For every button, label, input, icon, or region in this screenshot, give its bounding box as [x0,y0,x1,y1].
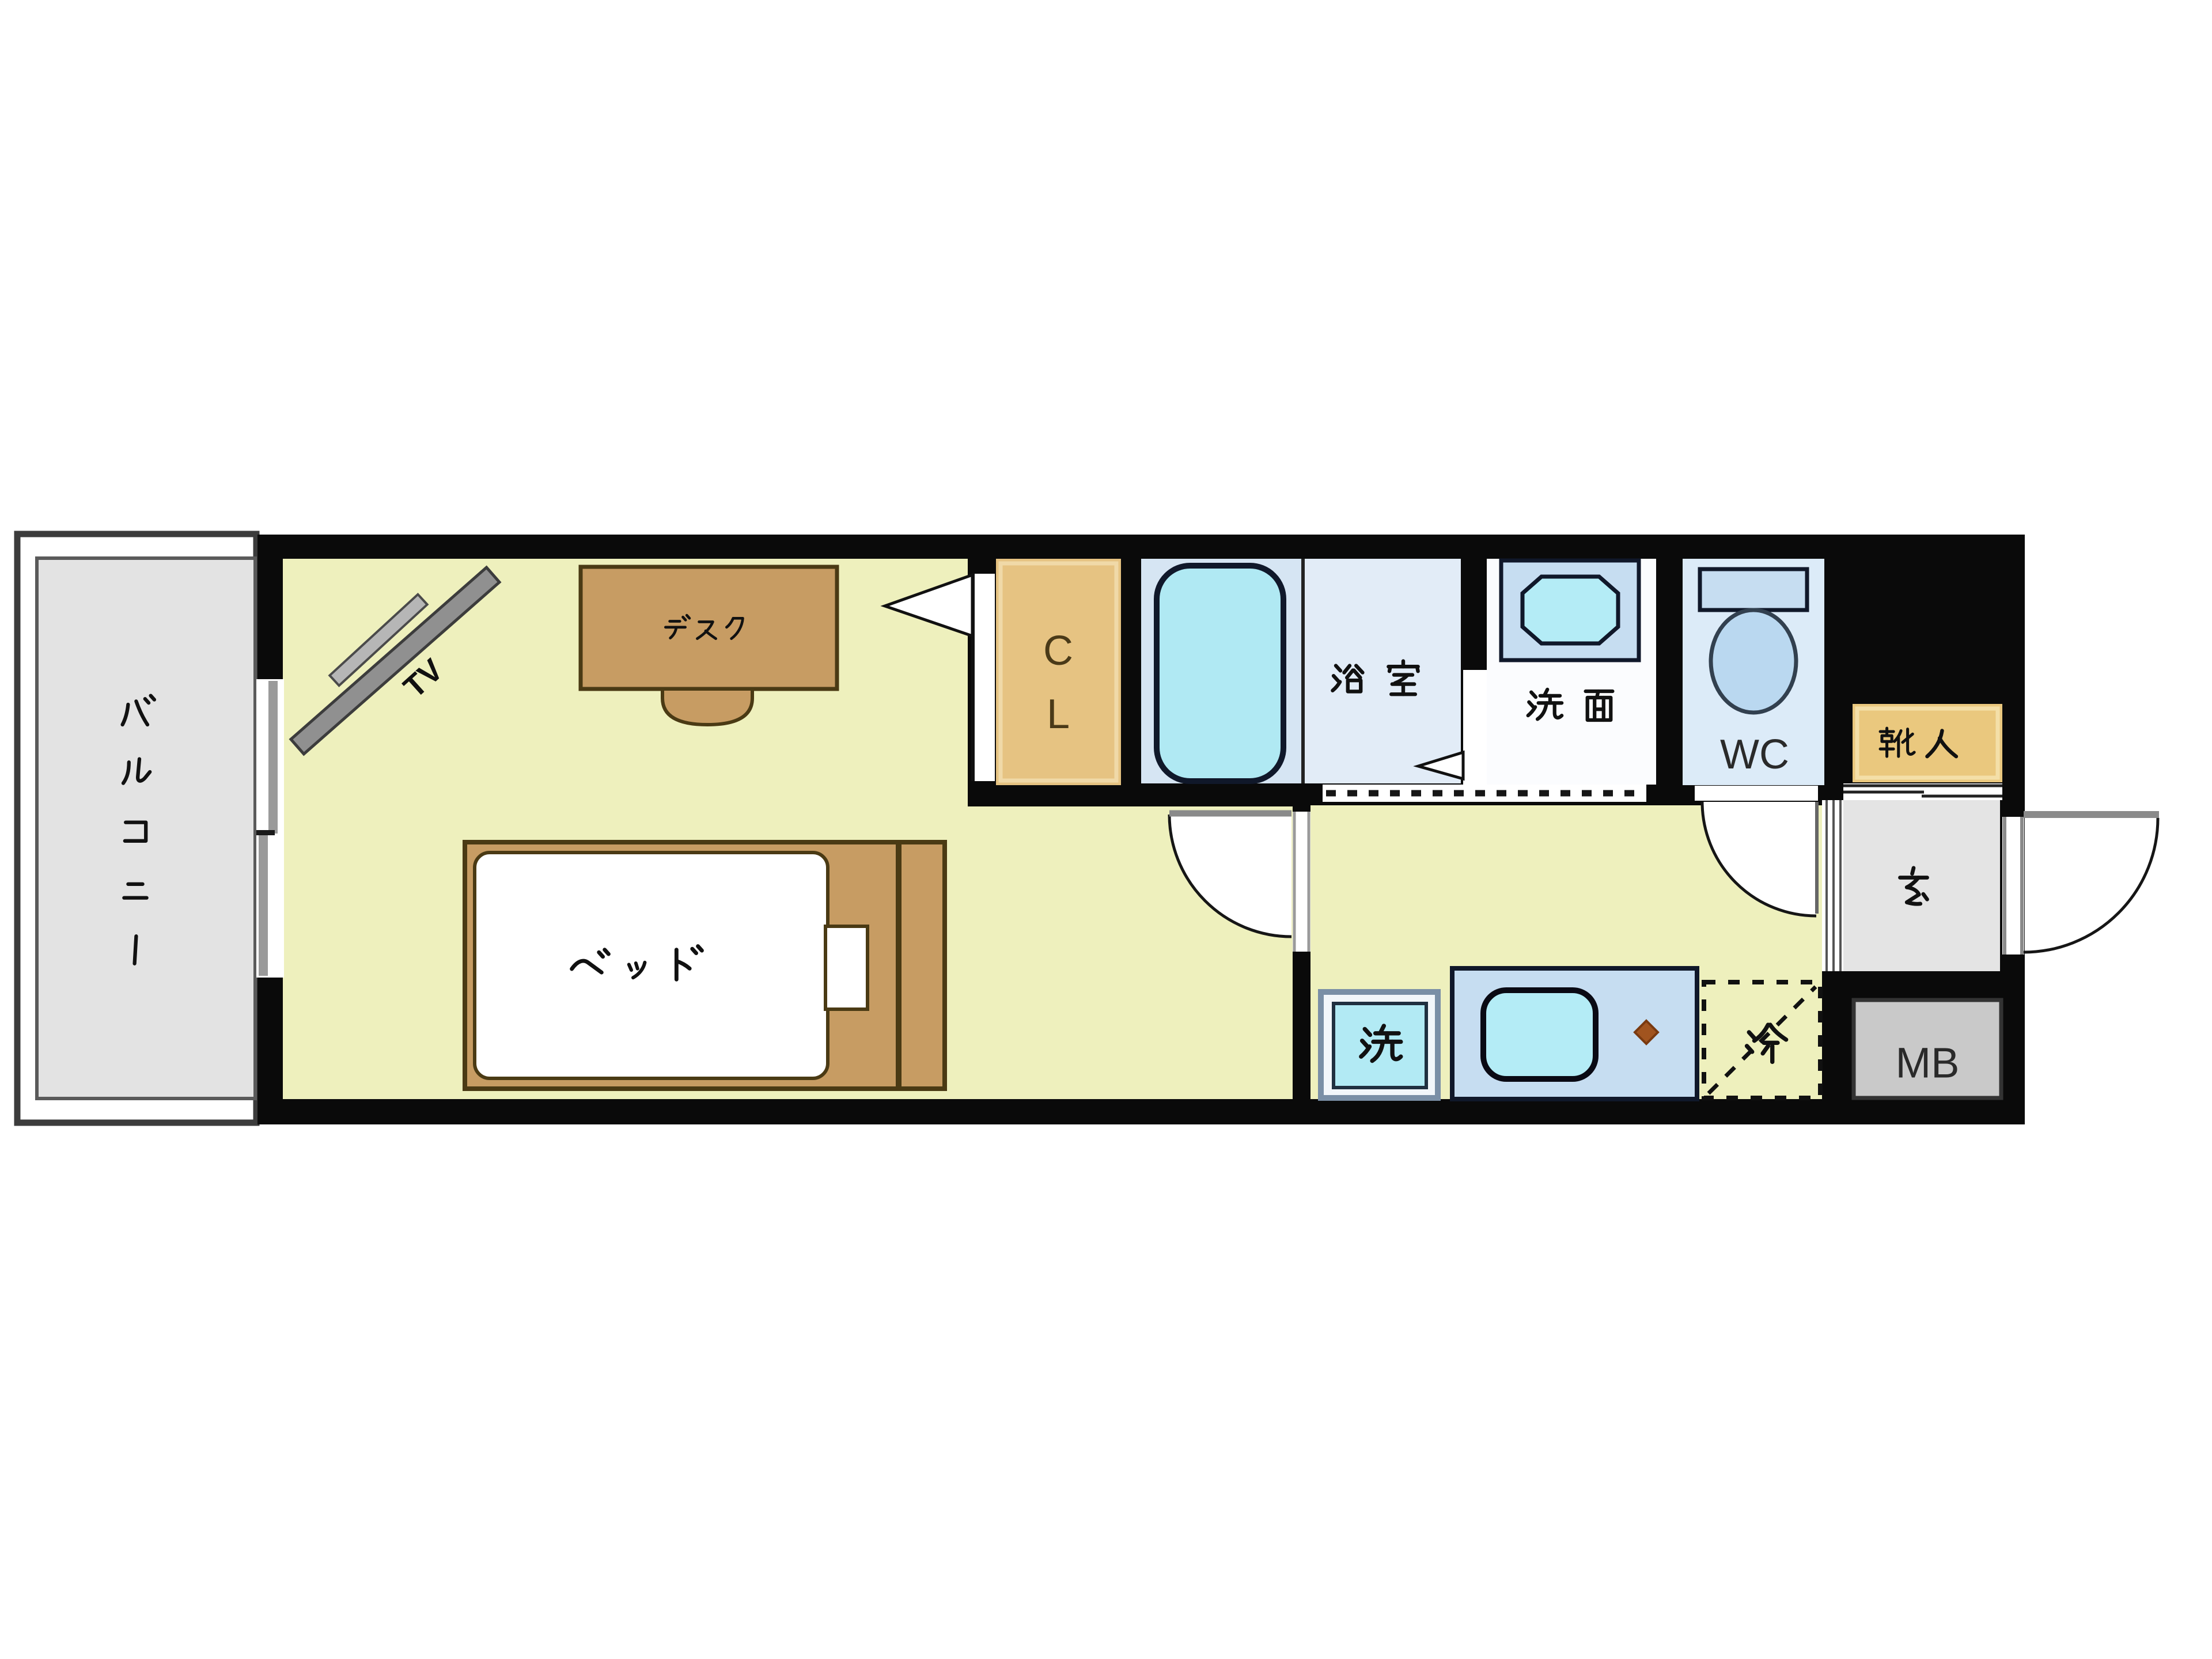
svg-text:L: L [1047,691,1070,737]
svg-text:MB: MB [1896,1039,1960,1087]
svg-text:C: C [1043,628,1073,674]
svg-text:WC: WC [1720,732,1789,778]
